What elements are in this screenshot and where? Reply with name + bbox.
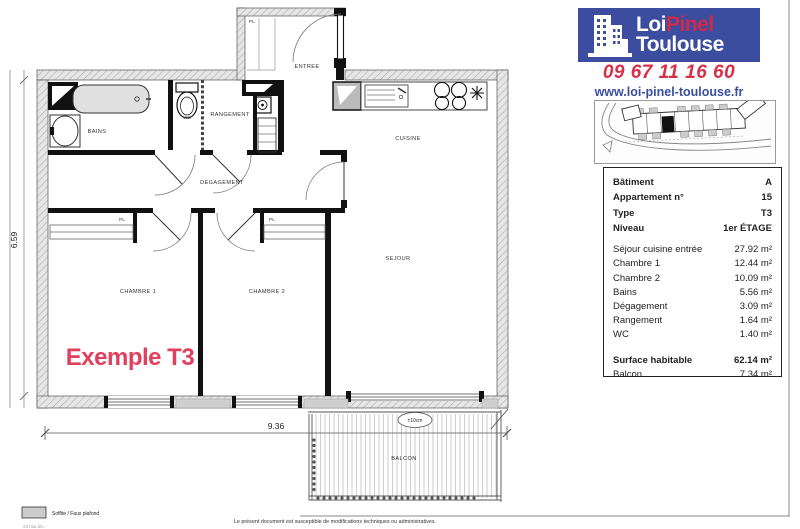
room-label-pl-entree: PL: [249, 19, 255, 24]
vent-symbol: [470, 86, 484, 100]
logo-word-toulouse: Toulouse: [636, 35, 724, 55]
washbasin: [50, 115, 80, 147]
room-label-bains: BAINS: [88, 129, 107, 135]
row-label: Appartement n°: [613, 190, 684, 205]
row-value: 1er ÉTAGE: [723, 221, 772, 236]
apartment-details-table: BâtimentA Appartement n°15 TypeT3 Niveau…: [603, 167, 782, 377]
dimension-height-label: 6.59: [9, 231, 19, 248]
watermark-exemple: Exemple T3: [66, 344, 195, 371]
room-label-chambre1: CHAMBRE 1: [120, 289, 156, 295]
site-location-map: [594, 100, 776, 164]
row-label: Surface habitable: [613, 353, 692, 368]
legend-swatch: [22, 507, 46, 518]
row-value: 1.40 m²: [740, 328, 772, 342]
table-row: Appartement n°15: [613, 190, 772, 205]
row-label: Bâtiment: [613, 175, 654, 190]
dimension-width-label: 9.36: [268, 421, 285, 431]
balcony: ±10cm BALCON: [308, 409, 508, 502]
room-label-pl2: PL: [269, 217, 275, 222]
footer-disclaimer: Le présent document est susceptible de m…: [234, 519, 436, 525]
phone-number: 09 67 11 16 60: [578, 62, 760, 84]
row-label: Séjour cuisine entrée: [613, 243, 702, 257]
row-value: 7.34 m²: [740, 368, 772, 382]
room-label-entree: ENTREE: [294, 64, 319, 70]
balcony-tolerance-label: ±10cm: [408, 418, 423, 424]
row-value: 1.64 m²: [740, 314, 772, 328]
row-label: Bains: [613, 286, 637, 300]
row-label: Chambre 1: [613, 257, 660, 271]
highlighted-unit: [662, 116, 675, 133]
row-label: Type: [613, 206, 634, 221]
row-value: A: [765, 175, 772, 190]
row-label: Chambre 2: [613, 272, 660, 286]
table-row: Chambre 210.09 m²: [613, 272, 772, 286]
table-row: Séjour cuisine entrée27.92 m²: [613, 243, 772, 257]
row-value: 3.09 m²: [740, 300, 772, 314]
room-label-sejour: SEJOUR: [385, 256, 410, 262]
logo-text: LoiPinel Toulouse: [636, 15, 724, 55]
row-value: T3: [761, 206, 772, 221]
table-row: Balcon7.34 m²: [613, 368, 772, 382]
table-row: WC1.40 m²: [613, 328, 772, 342]
toilet: [176, 83, 198, 118]
table-row: Dégagement3.09 m²: [613, 300, 772, 314]
table-row: Surface habitable62.14 m²: [613, 353, 772, 368]
table-row: Bains5.56 m²: [613, 286, 772, 300]
row-value: 15: [761, 190, 772, 205]
site-map-drawing: [595, 101, 773, 161]
row-label: Rangement: [613, 314, 662, 328]
room-label-pl1: PL: [119, 217, 125, 222]
date-note: 23 mai 20..: [23, 524, 45, 529]
row-label: Niveau: [613, 221, 644, 236]
entry-closet: [247, 18, 275, 70]
corner-shelf-rangement: [242, 80, 278, 96]
door-arc: [153, 213, 191, 251]
row-label: WC: [613, 328, 629, 342]
building-icon: [584, 11, 636, 59]
entry-door: [293, 8, 346, 68]
bathtub: [73, 85, 151, 113]
room-label-wc: WC: [183, 115, 192, 120]
table-row: Rangement1.64 m²: [613, 314, 772, 328]
room-label-balcon: BALCON: [391, 456, 416, 462]
legend-label: Soffite / Faux plafond: [52, 511, 99, 517]
door-arc: [155, 155, 195, 195]
kitchen-counter: [333, 82, 487, 110]
row-value: 27.92 m²: [735, 243, 773, 257]
row-value: 62.14 m²: [734, 353, 772, 368]
table-row: BâtimentA: [613, 175, 772, 190]
table-row: Niveau1er ÉTAGE: [613, 221, 772, 236]
room-label-chambre2: CHAMBRE 2: [249, 289, 285, 295]
table-row: TypeT3: [613, 206, 772, 221]
water-heater: [258, 118, 276, 152]
table-row: Chambre 112.44 m²: [613, 257, 772, 271]
plan-sheet: ±10cm BALCON 9.36 6.59 BAINS WC RANGEMEN…: [0, 0, 800, 529]
door-arc: [217, 213, 255, 251]
door-arc: [213, 155, 251, 193]
row-value: 12.44 m²: [735, 257, 773, 271]
interior-doors: [153, 155, 344, 251]
room-label-rangement: RANGEMENT: [210, 112, 250, 118]
row-label: Dégagement: [613, 300, 667, 314]
logo: LoiPinel Toulouse: [578, 8, 760, 62]
door-arc: [306, 162, 344, 200]
room-label-degagement: DEGAGEMENT: [200, 180, 244, 186]
closet-shelves: [50, 225, 325, 239]
row-value: 10.09 m²: [735, 272, 773, 286]
row-label: Balcon: [613, 368, 642, 382]
website-url: www.loi-pinel-toulouse.fr: [578, 85, 760, 99]
row-value: 5.56 m²: [740, 286, 772, 300]
room-label-cuisine: CUISINE: [395, 136, 421, 142]
